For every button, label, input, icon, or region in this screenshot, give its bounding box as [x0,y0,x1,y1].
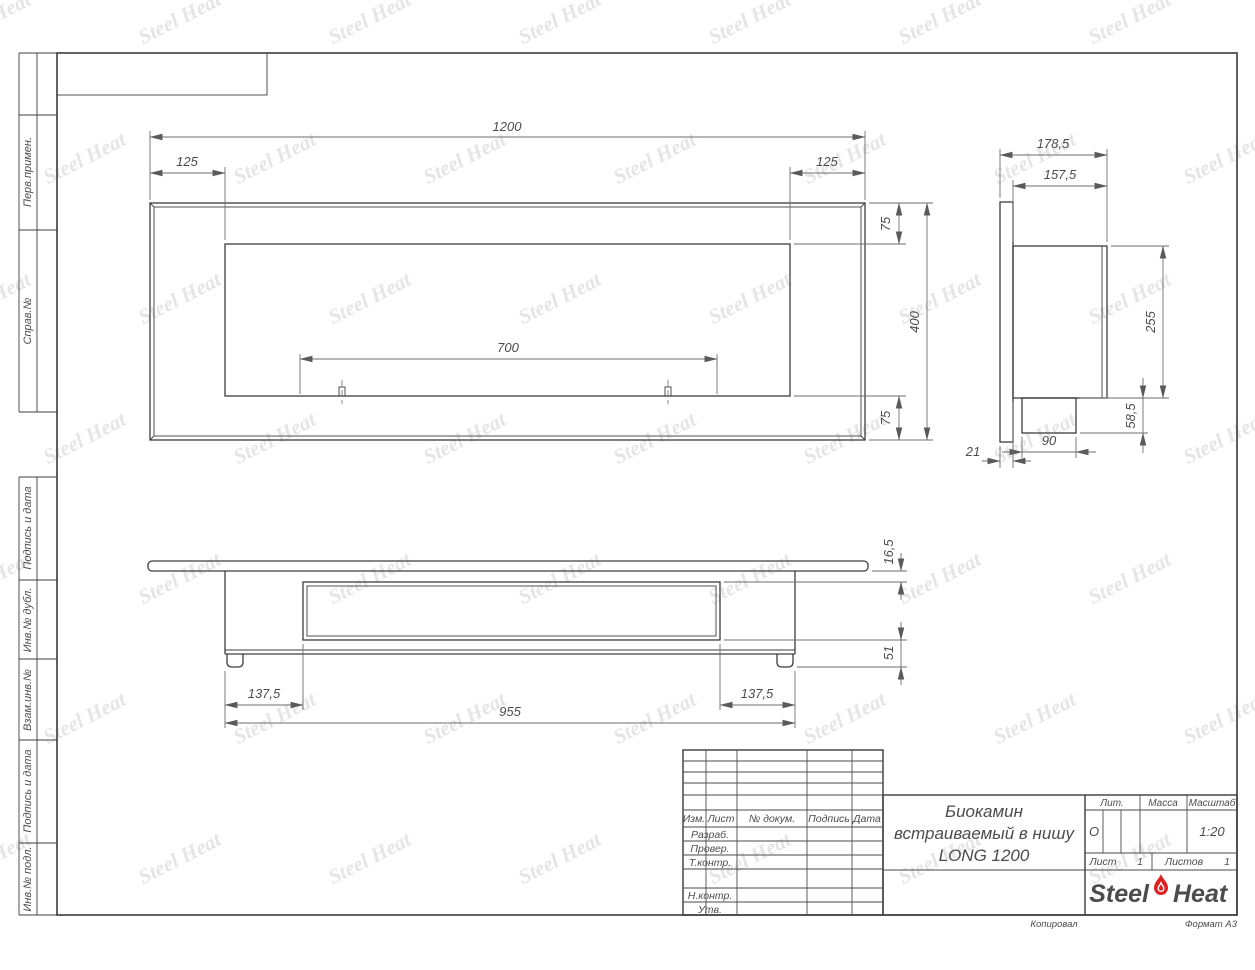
svg-text:75: 75 [878,410,893,425]
tb-sheet-value: 1 [1137,856,1143,868]
tb-sheets-label: Листов [1164,856,1204,868]
burner-clamp-left [339,380,345,404]
plan-burner-box [303,582,720,640]
tb-row-prover: Провер. [690,843,729,855]
svg-text:137,5: 137,5 [741,686,774,701]
kopiroval-note: Копировал [1030,919,1078,930]
dim-side-depth-total: 178,5 [1000,136,1107,242]
plan-foot-left [227,654,243,667]
dim-front-width: 1200 [150,119,865,200]
dim-side-depth-body: 157,5 [1013,167,1107,242]
svg-text:700: 700 [497,340,519,355]
tb-col-izm: Изм. [683,813,705,825]
dim-front-height: 400 [869,203,933,440]
svg-text:955: 955 [499,704,521,719]
tb-massa-label: Масса [1148,798,1178,809]
svg-text:125: 125 [816,154,838,169]
dim-plan-plate-thickness: 16,5 [724,539,907,600]
svg-text:90: 90 [1042,433,1057,448]
dim-side-body-height: 255 [1080,246,1169,398]
sheet-frame: Перв.примен. Справ.№ Подпись и дата Инв.… [19,53,1237,915]
svg-text:58,5: 58,5 [1123,403,1138,429]
tb-lit-label: Лит. [1099,798,1123,809]
svg-text:125: 125 [176,154,198,169]
front-view: 1200 125 125 700 [150,119,933,440]
drawing-sheet: Steel HeatSteel HeatSteel HeatSteel Heat… [0,0,1255,970]
sidebar-label-inv-podl: Инв.№ подл. [22,846,34,911]
sidebar-label-sprav-no: Справ.№ [22,297,34,344]
sidebar-label-vzam-inv: Взам.инв.№ [22,669,34,731]
dim-front-bottom-offset: 75 [794,396,906,440]
svg-text:137,5: 137,5 [248,686,281,701]
tb-col-podpis: Подпись [808,813,850,825]
side-view: 178,5 157,5 255 58,5 [965,136,1169,468]
tb-col-data: Дата [852,813,881,825]
tb-col-ndokum: № докум. [749,813,795,825]
svg-text:157,5: 157,5 [1044,167,1077,182]
tb-row-utv: Утв. [697,904,722,916]
dim-plan-body-width: 955 [225,704,795,723]
sidebar-label-perv-primen: Перв.примен. [22,137,34,207]
svg-text:51: 51 [881,646,896,660]
technical-drawing: Перв.примен. Справ.№ Подпись и дата Инв.… [0,0,1255,970]
tb-row-razrab: Разраб. [691,829,729,841]
doc-name-line1: Биокамин [945,802,1024,821]
doc-name-line2: встраиваемый в нишу [894,824,1075,843]
dim-front-top-offset: 75 [794,203,933,244]
tb-sheets-value: 1 [1224,856,1230,868]
dim-side-tray-height: 58,5 [1080,378,1148,453]
side-flange [1000,202,1013,442]
logo-heat-text: Heat [1173,880,1229,908]
tb-masshtab-label: Масштаб [1189,797,1236,809]
svg-text:21: 21 [965,444,980,459]
side-tray [1022,398,1076,433]
sidebar-label-podpis-data-2: Подпись и дата [22,749,34,832]
svg-text:16,5: 16,5 [881,539,896,565]
top-left-extra-box [57,53,267,95]
svg-text:178,5: 178,5 [1037,136,1070,151]
dim-front-burner-width: 700 [300,340,717,394]
doc-name-line3: LONG 1200 [939,846,1030,865]
steelheat-logo: Steel Heat [1089,874,1229,908]
svg-text:1200: 1200 [493,119,523,134]
dim-side-flange-thickness: 21 [965,402,1031,468]
plan-view: 137,5 137,5 955 16,5 [148,539,907,728]
side-body [1013,246,1107,398]
flame-icon [1154,874,1168,895]
svg-text:255: 255 [1143,310,1158,333]
dim-side-tray-width: 90 [1002,433,1096,458]
dim-front-right-offset: 125 [790,154,865,240]
svg-text:75: 75 [878,216,893,231]
sidebar-label-inv-dubl: Инв.№ дубл. [22,588,34,653]
plan-foot-right [777,654,793,667]
logo-steel-text: Steel [1089,880,1150,908]
sidebar-label-podpis-data-1: Подпись и дата [22,486,34,569]
burner-clamp-right [665,380,671,404]
plan-plate [148,561,868,571]
title-block: Изм. Лист № докум. Подпись Дата Разраб. … [683,750,1238,930]
tb-sheet-label: Лист [1088,856,1116,868]
dim-front-left-offset: 125 [150,154,225,240]
front-opening [225,244,790,396]
dim-plan-left-offset: 137,5 [225,644,303,728]
format-note: Формат А3 [1185,919,1238,930]
tb-lit-value: О [1089,824,1099,839]
tb-masshtab-value: 1:20 [1199,824,1225,839]
tb-col-list: Лист [706,813,734,825]
svg-text:400: 400 [907,310,922,332]
dim-plan-right-offset: 137,5 [720,644,795,728]
tb-row-nkontr: Н.контр. [688,890,732,902]
tb-row-tkontr: Т.контр. [689,857,731,869]
